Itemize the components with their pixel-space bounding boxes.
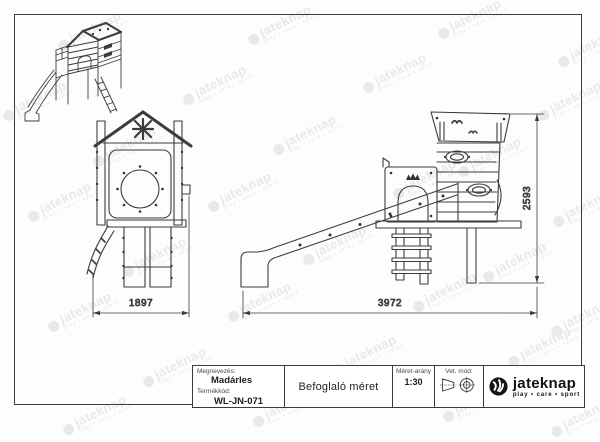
side-height-label: 2593 <box>522 186 533 210</box>
front-width-label: 1897 <box>129 298 153 309</box>
scale-value: 1:30 <box>393 377 434 388</box>
projection-label: Vet. mód: <box>435 368 483 375</box>
title-block-identification: Megnevezés: Madárles Termékkód: WL-JN-07… <box>193 366 285 407</box>
scale-label: Méret-arány <box>393 368 434 375</box>
entrance-panel <box>385 167 437 222</box>
window-bolts <box>116 165 164 213</box>
jateknap-logo-icon <box>488 376 509 397</box>
product-code: WL-JN-071 <box>197 396 280 407</box>
bird-silhouette <box>452 121 462 123</box>
drawing-title: Befoglaló méret <box>285 366 393 407</box>
projection-cell: Vet. mód: <box>435 366 484 407</box>
roof-panel <box>431 112 510 142</box>
ladder <box>392 228 431 284</box>
watermark-logo-icon <box>549 424 564 439</box>
brand-cell: jateknap play • care • sport <box>484 366 584 407</box>
code-label: Termékkód: <box>197 388 280 395</box>
front-view <box>87 112 191 287</box>
brand-tagline: play • care • sport <box>513 392 580 398</box>
arch-doorway <box>398 186 428 222</box>
product-name: Madárles <box>211 375 280 386</box>
crown-decoration <box>406 174 420 181</box>
technical-drawing: 1897 3972 2593 <box>0 0 600 425</box>
scale-cell: Méret-arány 1:30 <box>393 366 435 407</box>
climbing-wall <box>437 143 501 222</box>
first-angle-projection-icon <box>440 375 478 395</box>
side-view <box>241 112 521 287</box>
isometric-sketch <box>25 23 121 121</box>
gable-star-decoration <box>133 119 153 139</box>
dimension-side-length: 3972 <box>243 287 537 318</box>
name-label: Megnevezés: <box>197 368 280 375</box>
round-window <box>121 170 159 208</box>
dimension-side-height: 2593 <box>479 114 544 283</box>
drawing-sheet: jateknapplay • care • sportjateknapplay … <box>0 0 600 425</box>
brand-name: jateknap <box>513 376 580 391</box>
dimension-front-width: 1897 <box>93 196 189 317</box>
bird-silhouette <box>469 131 477 133</box>
title-block: Megnevezés: Madárles Termékkód: WL-JN-07… <box>192 365 585 408</box>
side-length-label: 3972 <box>378 298 402 309</box>
